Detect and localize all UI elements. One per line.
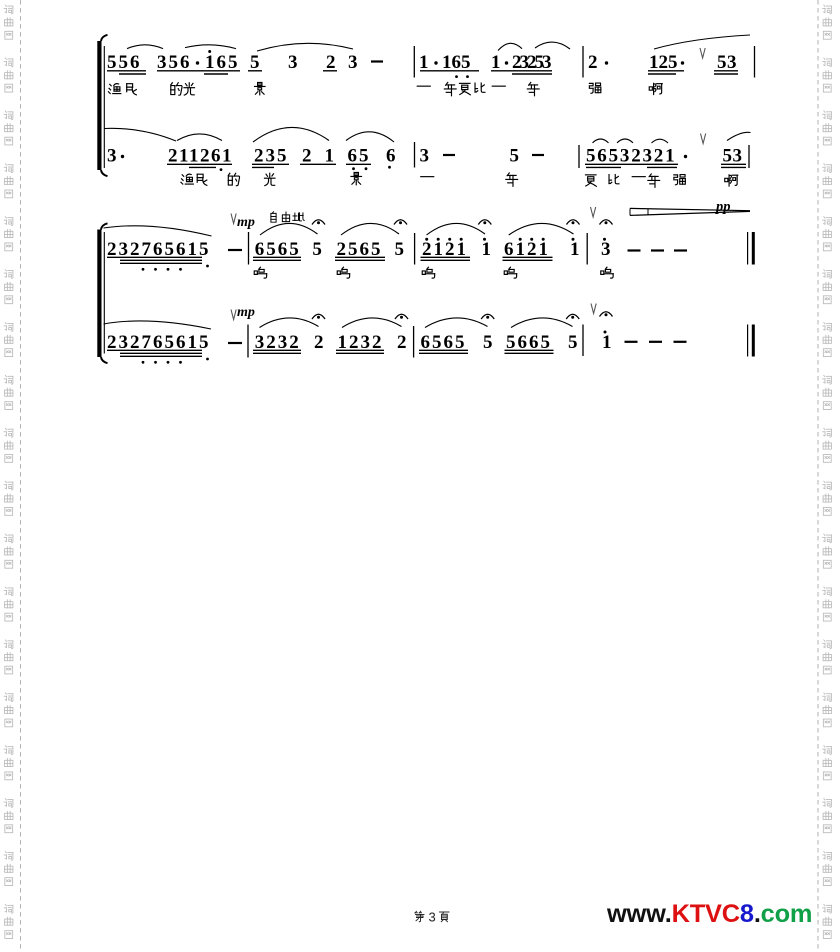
- svg-text:3: 3: [107, 146, 119, 167]
- svg-text:1: 1: [325, 146, 337, 167]
- svg-text:mp: mp: [237, 215, 255, 230]
- svg-text:www.KTVC8.com: www.KTVC8.com: [606, 900, 812, 928]
- svg-text:556: 556: [107, 52, 142, 73]
- svg-text:53: 53: [723, 146, 743, 167]
- svg-text:6: 6: [386, 146, 398, 167]
- svg-text:3: 3: [429, 910, 436, 925]
- svg-text:23253: 23253: [512, 52, 551, 73]
- svg-text:3: 3: [288, 52, 300, 73]
- svg-text:5: 5: [250, 52, 262, 73]
- svg-text:2: 2: [397, 332, 409, 353]
- svg-text:125: 125: [649, 52, 678, 73]
- svg-text:5: 5: [510, 146, 522, 167]
- svg-text:5: 5: [568, 332, 580, 353]
- svg-text:356: 356: [157, 52, 192, 73]
- svg-text:1: 1: [570, 239, 582, 260]
- svg-text:3: 3: [420, 146, 432, 167]
- svg-text:2: 2: [326, 52, 338, 73]
- svg-text:53: 53: [717, 52, 737, 73]
- svg-text:3: 3: [601, 239, 613, 260]
- svg-text:1: 1: [482, 239, 494, 260]
- svg-text:5: 5: [395, 239, 407, 260]
- svg-text:3: 3: [348, 52, 360, 73]
- svg-text:1: 1: [491, 52, 503, 73]
- svg-text:1: 1: [419, 52, 431, 73]
- svg-text:2: 2: [302, 146, 314, 167]
- svg-text:235: 235: [254, 146, 289, 167]
- svg-text:1: 1: [602, 332, 614, 353]
- svg-text:pp: pp: [714, 199, 731, 215]
- svg-text:2: 2: [314, 332, 326, 353]
- svg-text:65: 65: [348, 146, 371, 167]
- svg-text:5: 5: [483, 332, 495, 353]
- svg-text:165: 165: [442, 52, 471, 73]
- svg-text:5: 5: [312, 239, 324, 260]
- svg-text:165: 165: [205, 52, 240, 73]
- svg-text:2: 2: [588, 52, 600, 73]
- svg-text:mp: mp: [237, 305, 255, 320]
- svg-text:56532321: 56532321: [586, 146, 676, 167]
- svg-text:211261: 211261: [168, 146, 233, 167]
